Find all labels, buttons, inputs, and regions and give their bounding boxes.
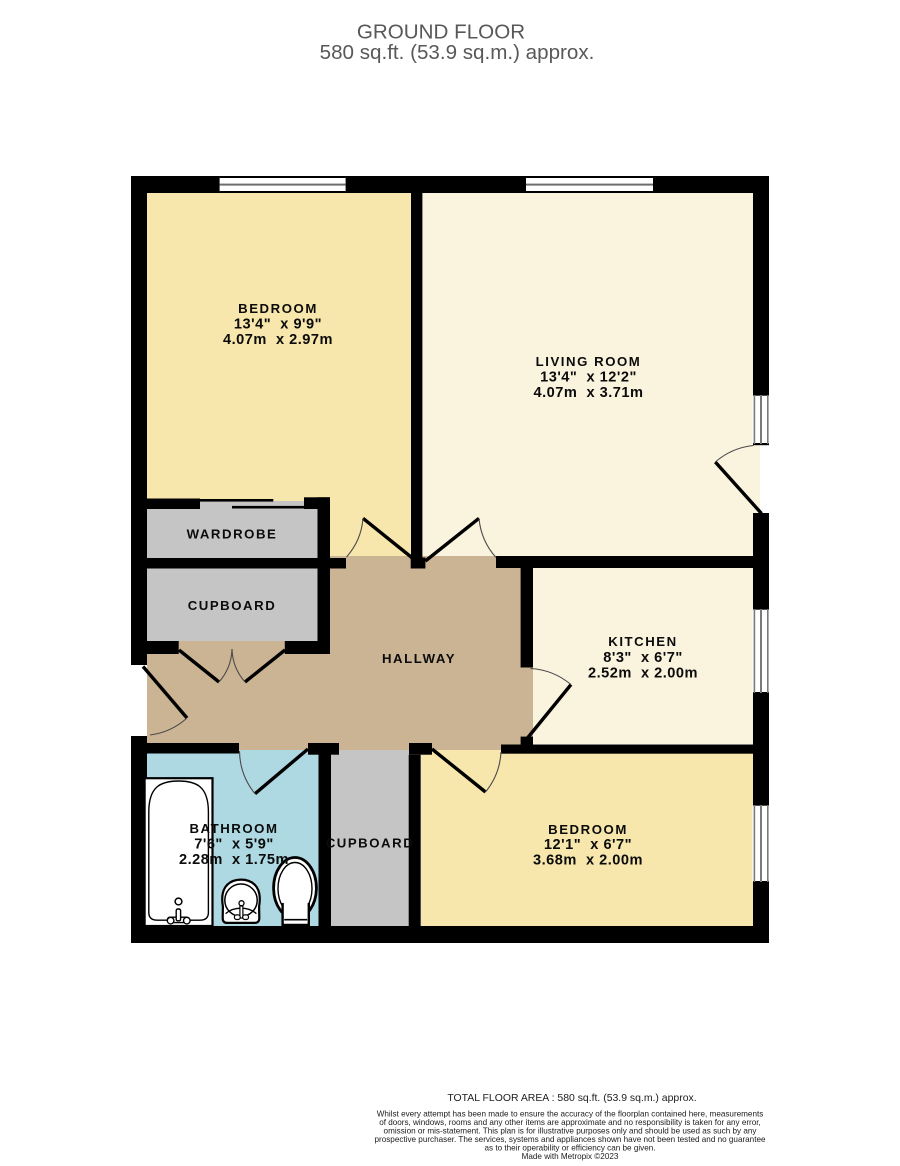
svg-text:BATHROOM: BATHROOM [189, 821, 278, 836]
svg-text:7'6" x 5'9": 7'6" x 5'9" [194, 837, 274, 853]
svg-text:Made with Metropix ©2023: Made with Metropix ©2023 [522, 1152, 619, 1161]
svg-text:3.68m x 2.00m: 3.68m x 2.00m [533, 853, 643, 869]
svg-text:12'1" x 6'7": 12'1" x 6'7" [544, 837, 632, 853]
svg-text:13'4" x 12'2": 13'4" x 12'2" [540, 370, 637, 386]
svg-text:8'3" x 6'7": 8'3" x 6'7" [603, 650, 683, 666]
svg-text:4.07m x 2.97m: 4.07m x 2.97m [223, 332, 333, 348]
svg-text:2.52m x 2.00m: 2.52m x 2.00m [588, 666, 698, 682]
svg-text:HALLWAY: HALLWAY [382, 651, 456, 666]
svg-text:WARDROBE: WARDROBE [187, 527, 278, 542]
svg-text:LIVING ROOM: LIVING ROOM [536, 354, 642, 369]
svg-text:TOTAL FLOOR AREA : 580 sq.ft.: TOTAL FLOOR AREA : 580 sq.ft. (53.9 sq.m… [447, 1093, 696, 1104]
svg-text:CUPBOARD: CUPBOARD [326, 836, 415, 851]
svg-text:2.28m x 1.75m: 2.28m x 1.75m [179, 852, 289, 868]
svg-text:13'4" x 9'9": 13'4" x 9'9" [234, 317, 322, 333]
svg-text:BEDROOM: BEDROOM [548, 822, 628, 837]
svg-text:KITCHEN: KITCHEN [608, 634, 677, 649]
svg-text:CUPBOARD: CUPBOARD [188, 598, 277, 613]
svg-text:BEDROOM: BEDROOM [238, 301, 318, 316]
svg-text:4.07m x 3.71m: 4.07m x 3.71m [533, 385, 643, 401]
svg-text:580 sq.ft. (53.9 sq.m.) approx: 580 sq.ft. (53.9 sq.m.) approx. [320, 41, 595, 64]
